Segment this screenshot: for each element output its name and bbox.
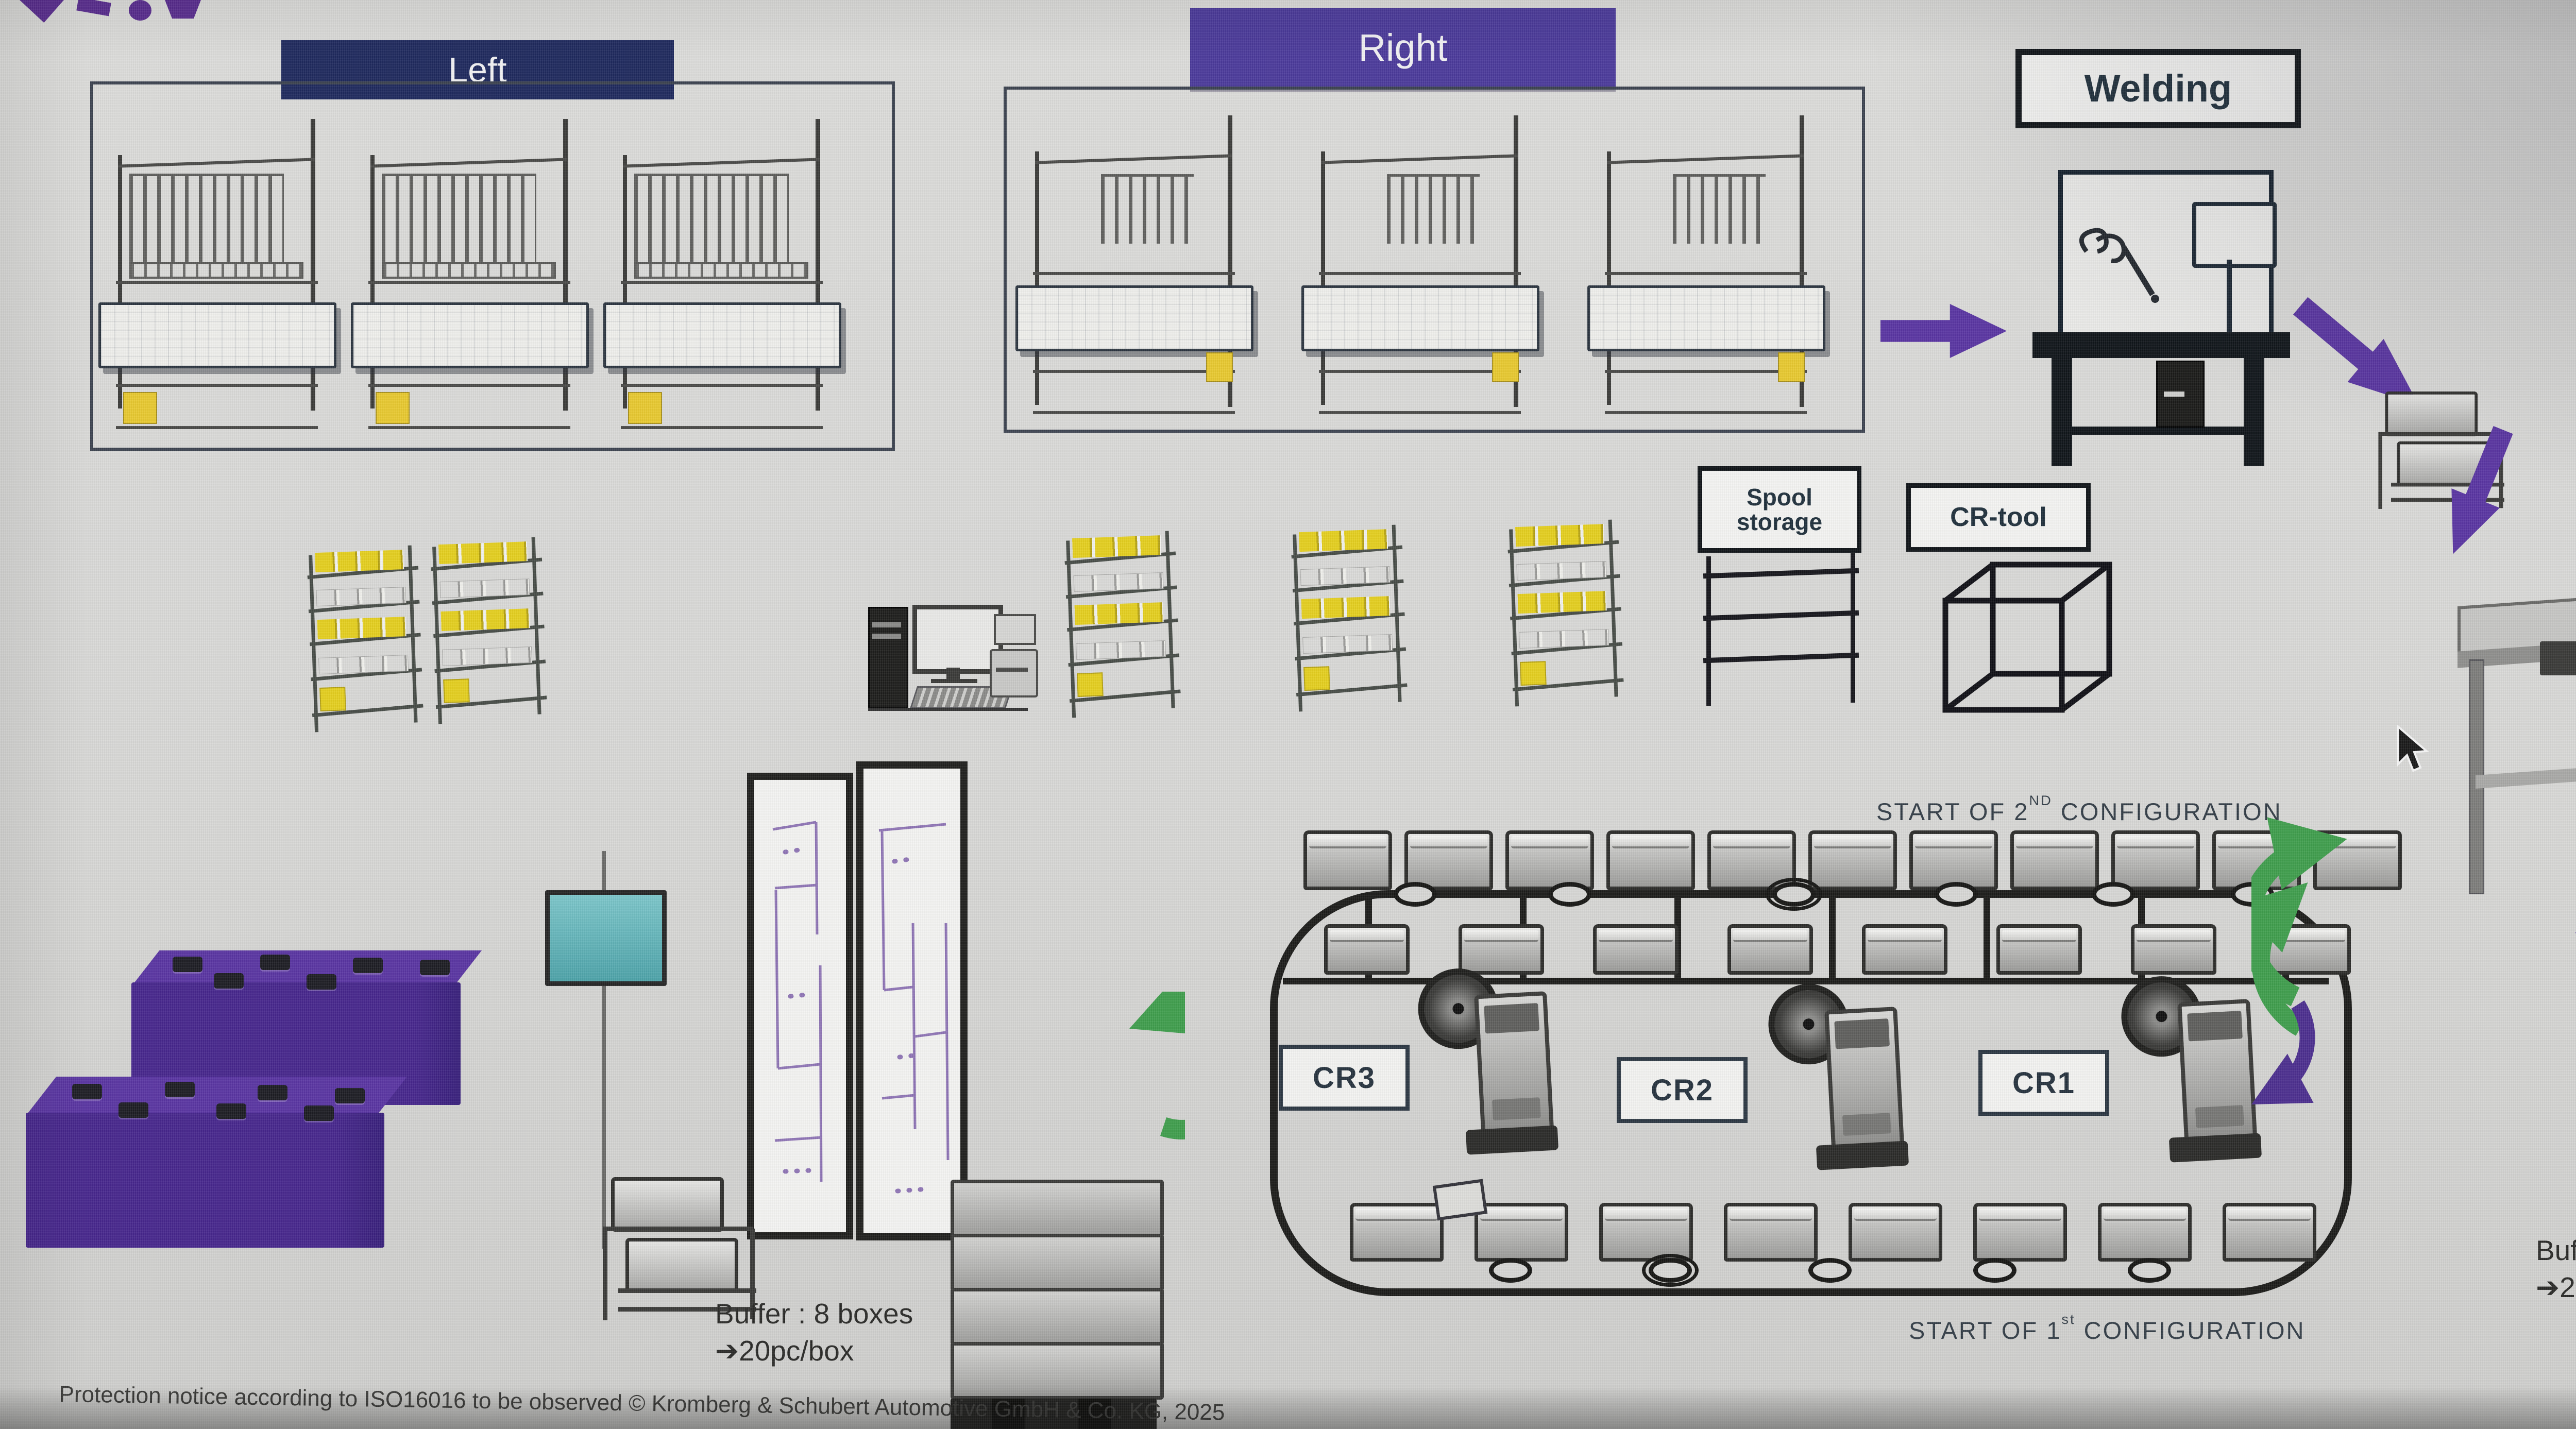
green-loop-arrow-left-icon — [1041, 992, 1185, 1146]
title-glyph-fragment — [76, 0, 111, 16]
machine-base — [1466, 1125, 1558, 1154]
kanban-box-row — [1301, 596, 1391, 619]
station-rail — [623, 158, 820, 167]
bench-slot — [258, 1085, 287, 1100]
kanban-box — [1492, 352, 1519, 382]
title-glyph-fragment — [20, 0, 64, 23]
kanban-rack — [432, 540, 541, 725]
start1-sup: st — [2061, 1311, 2075, 1327]
welding-label: Welding — [2015, 49, 2301, 128]
purple-bench — [26, 1077, 407, 1248]
cr2-label-text: CR2 — [1651, 1073, 1714, 1108]
kanban-box — [1303, 666, 1330, 691]
conveyor-box — [1303, 830, 1392, 890]
cr1-label: CR1 — [1978, 1050, 2109, 1116]
buffer-right-qty: 20pc/box — [2560, 1271, 2576, 1303]
workstation-baseline — [868, 708, 1028, 711]
factory-layout-slide: Left Right — [0, 0, 2576, 1429]
conveyor-box — [1505, 830, 1594, 890]
station-post — [1321, 151, 1325, 405]
welding-table-leg — [2244, 358, 2264, 466]
conveyor-roller — [2092, 882, 2135, 907]
wire-comb-base — [634, 262, 808, 279]
kanban-box — [1520, 661, 1547, 686]
mouse-cursor-icon — [2396, 725, 2437, 777]
conveyor-roller — [1394, 882, 1437, 907]
cart-frame — [2391, 498, 2504, 502]
assembly-station — [358, 106, 590, 435]
conveyor-box — [1909, 830, 1998, 890]
cr2-label: CR2 — [1617, 1057, 1748, 1123]
crimping-machine-cr3 — [1421, 973, 1561, 1191]
start-of-1st-configuration: START OF 1st CONFIGURATION — [1909, 1316, 2305, 1345]
conveyor-box — [1324, 924, 1410, 975]
bench-slot — [216, 1103, 246, 1119]
machine-tray — [1433, 1179, 1488, 1221]
conveyor-roller — [1808, 1258, 1852, 1283]
cart-frame — [2380, 432, 2502, 436]
conveyor-box — [1849, 1203, 1942, 1262]
machine-base — [1816, 1141, 1909, 1170]
station-rail — [621, 426, 823, 429]
machine-body — [2177, 999, 2257, 1142]
station-rail — [370, 158, 567, 167]
bench-slot — [353, 958, 383, 973]
monitor-stand — [946, 668, 960, 679]
welding-table-shelf — [2058, 427, 2259, 435]
assembly-station — [106, 106, 337, 435]
kanban-box-row — [1072, 535, 1161, 558]
rack-shelf — [1703, 653, 1859, 664]
formboard-panel — [856, 761, 968, 1240]
pc-tower-drive — [872, 622, 901, 627]
station-rail — [1605, 411, 1807, 414]
buffer-stack — [951, 1180, 1157, 1429]
conveyor-box — [1475, 1203, 1568, 1262]
wire-comb — [1101, 174, 1194, 244]
wire-comb — [1387, 174, 1480, 244]
kanban-rack — [1066, 534, 1175, 719]
welding-power-unit-slot — [2164, 392, 2184, 397]
station-rail — [1605, 272, 1807, 275]
kanban-rack — [1509, 523, 1618, 708]
assembly-board — [603, 302, 841, 368]
start2-suffix: CONFIGURATION — [2053, 798, 2282, 825]
box-row — [1302, 634, 1393, 654]
box — [951, 1288, 1164, 1346]
assembly-board — [1587, 285, 1825, 351]
assembly-station — [611, 106, 842, 435]
spool-storage-label: Spool storage — [1698, 466, 1861, 553]
buffer-left-qty: 20pc/box — [739, 1335, 854, 1367]
conveyor-roller — [1548, 882, 1591, 907]
station-rail — [116, 426, 318, 429]
conveyor-box-row-middle — [1324, 924, 2351, 975]
crimping-machine-cr1 — [2125, 981, 2264, 1199]
machine-body — [1824, 1007, 1904, 1150]
rack-shelf — [1703, 610, 1859, 621]
spool-storage-line1: Spool — [1737, 485, 1822, 509]
station-rail — [1607, 154, 1804, 164]
conveyor-box — [2111, 830, 2200, 890]
conveyor-box-row-top — [1303, 830, 2402, 890]
kanban-box — [376, 392, 410, 424]
kanban-box — [1778, 352, 1805, 382]
section-header-right: Right — [1190, 8, 1616, 87]
conveyor-box — [2010, 830, 2099, 890]
assembly-board — [98, 302, 336, 368]
box — [625, 1238, 738, 1292]
conveyor-roller — [2128, 1258, 2171, 1283]
conveyor-box — [1727, 924, 1813, 975]
station-rail — [368, 384, 570, 387]
box — [951, 1234, 1164, 1291]
conveyor-box — [2098, 1203, 2192, 1262]
assembly-station — [1023, 102, 1255, 432]
rack-post — [1851, 553, 1855, 703]
assembly-station — [1309, 102, 1540, 432]
flow-arrow-chp-to-buffer-icon — [2571, 876, 2576, 979]
cr1-label-text: CR1 — [2012, 1066, 2075, 1100]
kanban-box — [1077, 672, 1104, 697]
arrow-right-icon: ➔ — [2536, 1271, 2560, 1303]
station-rail — [368, 281, 570, 284]
title-glyph-fragment — [129, 0, 151, 21]
assembly-board — [1015, 285, 1253, 351]
conveyor-box — [1599, 1203, 1693, 1262]
station-rail — [116, 281, 318, 284]
conveyor-box-row-bottom — [1350, 1203, 2316, 1262]
kanban-box-row — [317, 617, 406, 639]
start-of-2nd-configuration: START OF 2ND CONFIGURATION — [1876, 797, 2282, 826]
kanban-box — [1206, 352, 1233, 382]
flow-arrow-to-welding-icon — [1880, 299, 2007, 363]
conveyor-roller — [1649, 1258, 1692, 1283]
cart-frame — [2378, 432, 2382, 509]
bench-slot — [118, 1102, 148, 1118]
station-rail — [621, 384, 823, 387]
conveyor-box — [1973, 1203, 2067, 1262]
spool-storage-line2: storage — [1737, 509, 1822, 534]
cr3-label-text: CR3 — [1313, 1061, 1376, 1095]
bench-slot — [165, 1082, 195, 1097]
buffer-note-right: Buffer : 8 boxes ➔20pc/box — [2536, 1232, 2576, 1306]
kanban-box-row — [1518, 591, 1607, 614]
conveyor-box — [1724, 1203, 1818, 1262]
bench-slot — [214, 973, 244, 989]
welding-monitor — [2192, 202, 2277, 268]
wire-comb-base — [129, 262, 303, 279]
station-rail — [1033, 272, 1235, 275]
welding-table-top — [2032, 332, 2290, 358]
kanban-box — [123, 392, 157, 424]
bench-front — [26, 1113, 384, 1248]
conveyor-box — [1404, 830, 1493, 890]
conveyor-box — [1593, 924, 1679, 975]
kanban-rack — [1293, 528, 1402, 713]
bench-slot — [260, 955, 290, 970]
start1-prefix: START OF 1 — [1909, 1317, 2061, 1344]
welding-table-leg — [2052, 358, 2072, 466]
kanban-box — [319, 687, 346, 711]
assembly-board — [351, 302, 589, 368]
assembly-station — [1595, 102, 1826, 432]
box-row — [1073, 572, 1163, 592]
buffer-note-left: Buffer : 8 boxes ➔20pc/box — [715, 1296, 913, 1369]
start1-suffix: CONFIGURATION — [2076, 1317, 2306, 1344]
cart-frame — [618, 1288, 756, 1293]
machine-base — [2169, 1133, 2262, 1162]
box-row — [1300, 566, 1390, 586]
title-glyph-fragment — [165, 0, 201, 19]
station-rail — [1319, 411, 1521, 414]
buffer-left-line1: Buffer : 8 boxes — [715, 1298, 913, 1330]
assembly-board — [1301, 285, 1539, 351]
station-post — [1035, 151, 1039, 405]
station-rail — [621, 281, 823, 284]
printer-top-icon — [994, 614, 1036, 645]
kanban-box-row — [438, 541, 528, 564]
chp-table-shelf — [2476, 750, 2576, 789]
station-rail — [368, 426, 570, 429]
station-rail — [1605, 370, 1807, 373]
conveyor-roller — [1935, 882, 1978, 907]
box — [2385, 392, 2478, 436]
conveyor-roller — [1973, 1258, 2016, 1283]
section-header-right-label: Right — [1359, 26, 1448, 70]
wire-comb — [634, 174, 789, 263]
loop-arrows-right — [2251, 811, 2427, 1234]
bench-slot — [72, 1084, 102, 1099]
printer-slot — [996, 668, 1028, 672]
wire-comb — [1673, 174, 1766, 244]
kanban-box-row — [315, 550, 404, 572]
station-rail — [118, 158, 315, 167]
conveyor-box — [1808, 830, 1897, 890]
station-rail — [116, 384, 318, 387]
kanban-box-row — [1075, 602, 1164, 625]
station-rail — [1035, 154, 1232, 164]
kanban-box-row — [1299, 529, 1388, 552]
conveyor-box — [2131, 924, 2216, 975]
pc-tower-drive — [872, 634, 901, 639]
kanban-box-row — [441, 608, 530, 631]
conveyor-roller — [1772, 882, 1816, 907]
rack-post — [1706, 556, 1711, 706]
cr3-label: CR3 — [1279, 1045, 1410, 1111]
station-rail — [1319, 370, 1521, 373]
box-row — [1516, 561, 1606, 581]
cart-frame — [603, 1227, 607, 1320]
monitor-base — [931, 679, 977, 683]
box-row — [439, 579, 530, 598]
kanban-box-row — [1515, 524, 1604, 547]
bench-slot — [335, 1088, 365, 1103]
bench-slot — [173, 957, 202, 972]
printer-body-icon — [990, 649, 1038, 698]
computer-workstation — [868, 602, 1033, 714]
bench-slot — [307, 974, 336, 990]
bench-slot — [304, 1105, 334, 1121]
station-post — [1607, 151, 1611, 405]
crimping-machine-cr2 — [1772, 989, 1911, 1206]
machine-body — [1474, 991, 1554, 1134]
box — [951, 1342, 1164, 1400]
conveyor-box — [1996, 924, 2082, 975]
box — [951, 1180, 1164, 1237]
welding-torch-icon — [2071, 216, 2195, 319]
wire-comb-base — [382, 262, 556, 279]
wire-comb — [382, 174, 536, 263]
station-rail — [1319, 272, 1521, 275]
buffer-right-line1: Buffer : 8 boxes — [2536, 1234, 2576, 1266]
cart-frame — [605, 1227, 753, 1231]
station-rail — [1033, 370, 1235, 373]
kanban-box — [443, 678, 470, 703]
conveyor-box — [1606, 830, 1695, 890]
cr-tool-label: CR-tool — [1906, 483, 2091, 552]
conveyor-roller — [1489, 1258, 1532, 1283]
box-row — [316, 587, 406, 606]
station-rail — [1033, 411, 1235, 414]
conveyor-box — [1862, 924, 1947, 975]
box-row — [1519, 629, 1609, 649]
conveyor-box — [1459, 924, 1544, 975]
box — [611, 1177, 724, 1232]
welding-monitor-stand — [2227, 260, 2232, 332]
wire-comb — [129, 174, 284, 263]
formboard-drawing — [754, 780, 846, 1232]
cr-tool-cube — [1931, 555, 2132, 720]
start2-sup: ND — [2029, 792, 2052, 808]
cr-tool-label-text: CR-tool — [1950, 503, 2047, 532]
welding-label-text: Welding — [2084, 69, 2232, 109]
formboard-panel — [747, 773, 853, 1239]
bench-slot — [420, 960, 450, 975]
box-row — [1076, 640, 1166, 660]
station-rail — [1321, 154, 1518, 164]
rack-shelf — [1703, 568, 1859, 579]
box-row — [442, 647, 532, 666]
formboard-drawing — [863, 769, 960, 1233]
box-row — [318, 655, 409, 674]
kanban-rack — [309, 549, 418, 734]
arrow-right-icon: ➔ — [715, 1335, 739, 1367]
conveyor-box — [1350, 1203, 1444, 1262]
start2-prefix: START OF 2 — [1876, 798, 2029, 825]
teal-monitor-icon — [545, 890, 667, 986]
chp-press-unit — [2540, 641, 2576, 675]
kanban-box — [628, 392, 662, 424]
